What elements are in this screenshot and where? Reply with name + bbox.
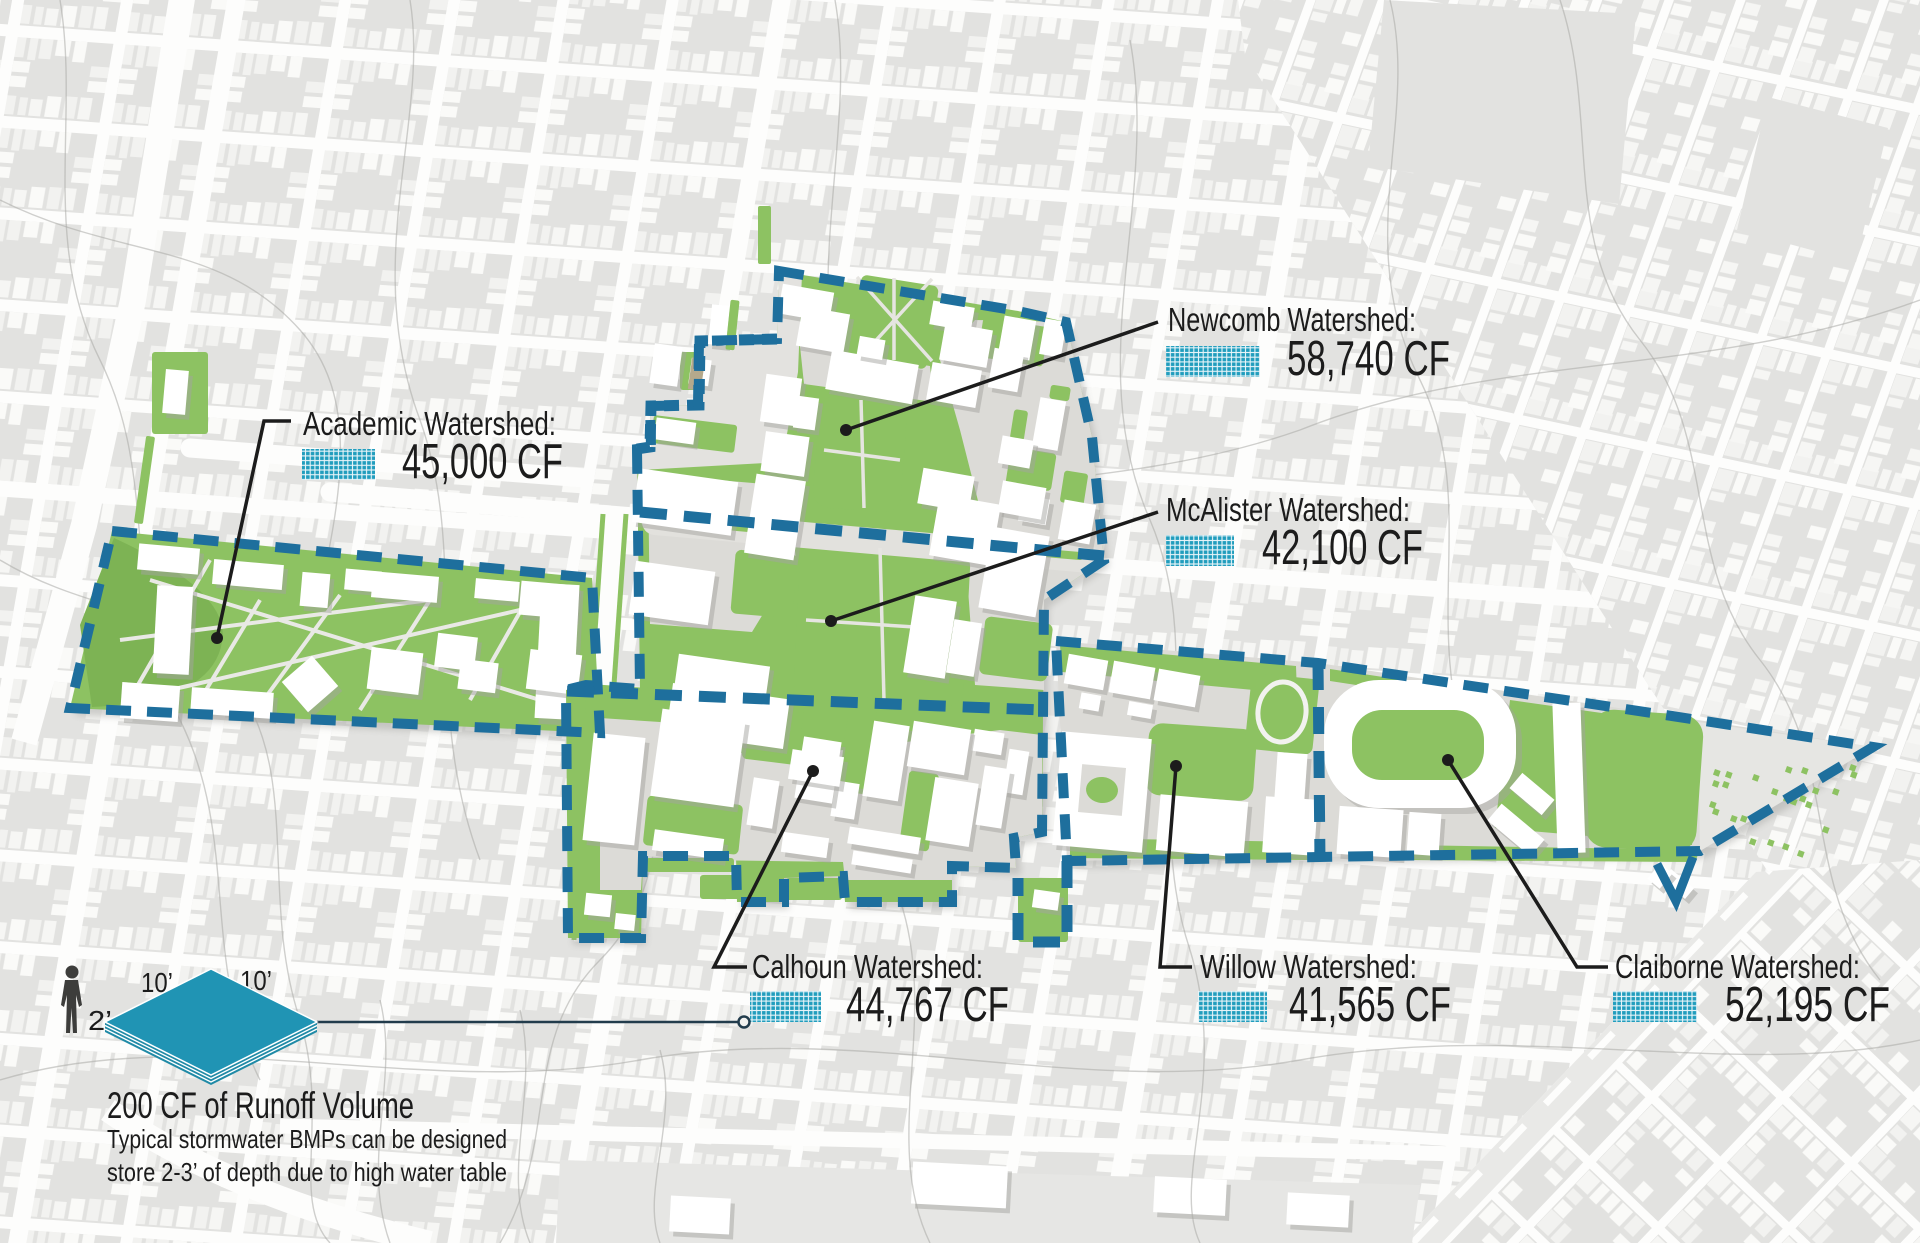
svg-text:41,565 CF: 41,565 CF xyxy=(1289,978,1451,1032)
svg-text:200 CF of Runoff Volume: 200 CF of Runoff Volume xyxy=(107,1085,414,1126)
svg-text:44,767 CF: 44,767 CF xyxy=(846,978,1009,1032)
svg-text:58,740 CF: 58,740 CF xyxy=(1287,332,1450,386)
svg-text:52,195 CF: 52,195 CF xyxy=(1725,978,1890,1032)
svg-text:store 2-3’ of depth due to hig: store 2-3’ of depth due to high water ta… xyxy=(107,1157,507,1187)
svg-text:Typical stormwater BMPs can be: Typical stormwater BMPs can be designed xyxy=(107,1124,507,1154)
svg-text:45,000 CF: 45,000 CF xyxy=(402,435,563,489)
svg-text:42,100 CF: 42,100 CF xyxy=(1262,521,1423,575)
